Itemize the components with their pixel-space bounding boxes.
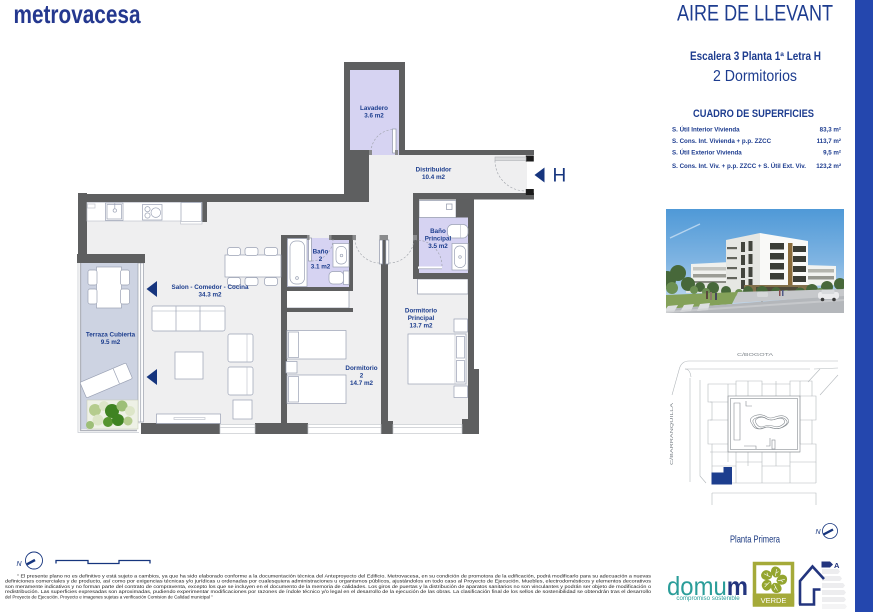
svg-text:Terraza Cubierta: Terraza Cubierta: [86, 332, 136, 339]
svg-text:Principal: Principal: [408, 315, 435, 322]
svg-text:S. Cons. Int. Viv. + p.p. ZZCC: S. Cons. Int. Viv. + p.p. ZZCC + S. Útil…: [672, 163, 806, 170]
svg-text:VERDE: VERDE: [761, 596, 787, 605]
svg-text:3.6 m2: 3.6 m2: [364, 113, 384, 120]
svg-text:N: N: [815, 529, 821, 536]
svg-text:metrovacesa: metrovacesa: [14, 0, 141, 29]
svg-text:3.5 m2: 3.5 m2: [428, 243, 448, 250]
svg-text:2 Dormitorios: 2 Dormitorios: [713, 68, 797, 85]
svg-text:Dormitorio: Dormitorio: [405, 308, 437, 315]
svg-text:14.7 m2: 14.7 m2: [350, 380, 374, 387]
svg-text:Salon - Comedor - Cocina: Salon - Comedor - Cocina: [172, 284, 249, 291]
svg-text:3.1 m2: 3.1 m2: [311, 264, 331, 271]
svg-text:Principal: Principal: [425, 236, 452, 243]
svg-text:10.4 m2: 10.4 m2: [422, 174, 446, 181]
svg-text:Dormitorio: Dormitorio: [345, 365, 377, 372]
svg-text:S. Útil Interior Vivienda: S. Útil Interior Vivienda: [672, 127, 740, 134]
svg-text:Baño: Baño: [313, 249, 329, 256]
svg-text:13.7 m2: 13.7 m2: [409, 323, 433, 330]
svg-text:CUADRO DE SUPERFICIES: CUADRO DE SUPERFICIES: [693, 108, 814, 120]
svg-text:AIRE DE LLEVANT: AIRE DE LLEVANT: [677, 1, 833, 26]
svg-text:S. Cons. Int. Vivienda + p.p.: S. Cons. Int. Vivienda + p.p. ZZCC: [672, 138, 772, 145]
svg-text:Escalera 3 Planta 1ª Letra H: Escalera 3 Planta 1ª Letra H: [690, 51, 821, 63]
svg-text:9.5 m2: 9.5 m2: [101, 339, 121, 346]
svg-text:C/BARRANQUILLA: C/BARRANQUILLA: [669, 403, 674, 465]
svg-text:S. Útil Exterior Vivienda: S. Útil Exterior Vivienda: [672, 150, 742, 157]
svg-text:9,5 m²: 9,5 m²: [823, 150, 841, 157]
svg-text:34.3 m2: 34.3 m2: [198, 292, 222, 299]
svg-text:A: A: [834, 561, 840, 570]
svg-text:C/BOGOTA: C/BOGOTA: [737, 352, 773, 357]
svg-text:123,2 m²: 123,2 m²: [816, 163, 841, 170]
svg-text:compromiso sostenible: compromiso sostenible: [676, 595, 740, 602]
svg-text:N: N: [16, 561, 22, 568]
svg-text:83,3 m²: 83,3 m²: [820, 127, 841, 134]
svg-text:113,7 m²: 113,7 m²: [817, 138, 841, 145]
svg-text:2: 2: [319, 256, 323, 263]
svg-text:Lavadero: Lavadero: [360, 105, 388, 112]
svg-text:Distribuidor: Distribuidor: [416, 167, 452, 174]
svg-text:H: H: [553, 166, 567, 187]
svg-text:del Proyecto de Ejecución. Pro: del Proyecto de Ejecución. Proyecto e im…: [5, 594, 213, 599]
svg-text:Baño: Baño: [430, 228, 446, 235]
svg-text:Planta Primera: Planta Primera: [730, 534, 780, 546]
svg-text:2: 2: [360, 373, 364, 380]
